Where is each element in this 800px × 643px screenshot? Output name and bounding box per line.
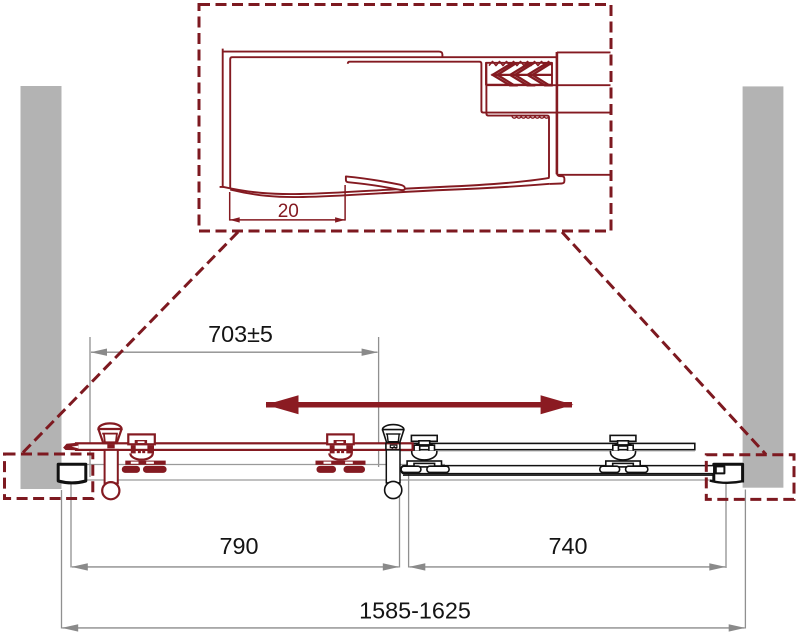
svg-text:790: 790 (219, 533, 258, 559)
svg-text:703±5: 703±5 (208, 321, 273, 347)
svg-text:20: 20 (278, 201, 299, 222)
svg-text:740: 740 (548, 533, 587, 559)
svg-text:1585-1625: 1585-1625 (359, 597, 471, 623)
